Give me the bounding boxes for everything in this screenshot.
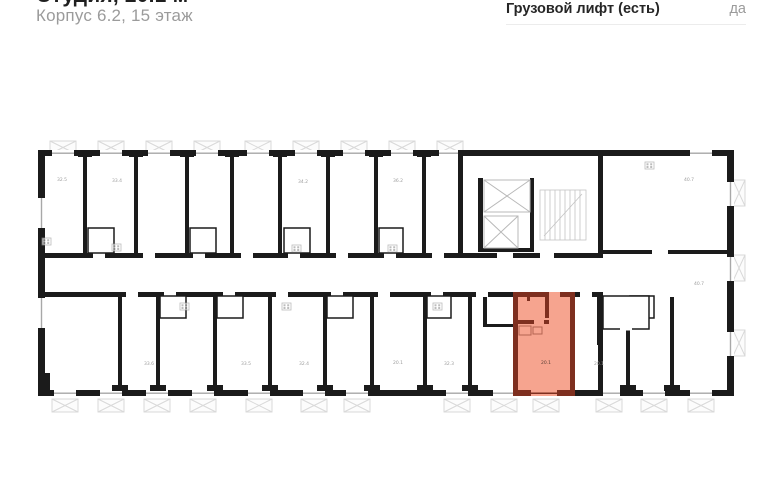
room-label-t3: 34.2	[298, 179, 308, 185]
highlighted-unit-area-label: 20.1	[541, 360, 551, 366]
highlighted-unit[interactable]: 20.1	[513, 292, 575, 396]
fixture-icons	[42, 162, 654, 310]
room-label-rt: 40.7	[684, 177, 694, 183]
elevator-shaft-1	[484, 180, 530, 212]
room-label-b3: 32.4	[299, 361, 309, 367]
staircase	[540, 190, 586, 240]
interior-walls	[40, 150, 728, 396]
room-label-t4: 36.2	[393, 178, 403, 184]
floor-plan: 20.1 32.5 33.4 34.2 36.2 40.7 33.6 33.5 …	[0, 0, 770, 500]
room-labels: 32.5 33.4 34.2 36.2 40.7 33.6 33.5 32.4 …	[57, 177, 704, 367]
room-label-rb: 40.7	[694, 281, 704, 287]
room-label-b6: 20.1	[594, 361, 604, 367]
room-label-t1: 32.5	[57, 177, 67, 183]
elevator-shaft-2	[484, 216, 518, 248]
room-label-b1: 33.6	[144, 361, 154, 367]
room-label-b2: 33.5	[241, 361, 251, 367]
room-label-t2: 33.4	[112, 178, 122, 184]
room-label-b5: 32.3	[444, 361, 454, 367]
room-label-b4: 20.1	[393, 360, 403, 366]
